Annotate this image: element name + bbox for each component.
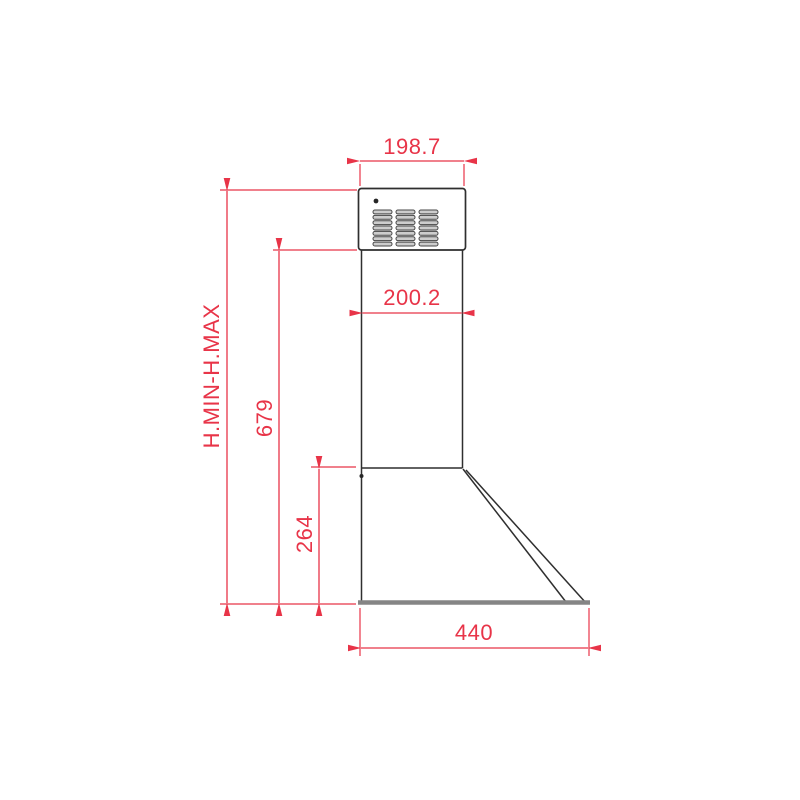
dimension-label-top-duct-width: 198.7 (383, 134, 441, 159)
dimension-top-duct-width: 198.7 (360, 134, 464, 186)
vent-slot (396, 242, 415, 246)
vent-grid (373, 210, 438, 246)
dimension-base-depth: 440 (360, 608, 589, 656)
dimension-height-range: H.MIN-H.MAX (199, 190, 357, 603)
dimension-label-base-depth: 440 (455, 620, 493, 645)
vent-slot (373, 231, 392, 235)
technical-drawing-canvas: 198.7 200.2 H.MIN-H.MAX 679 264 (0, 0, 800, 800)
dimension-chimney-width: 200.2 (363, 285, 462, 313)
vent-slot (373, 226, 392, 230)
vent-slot (419, 210, 438, 214)
vent-slot (373, 215, 392, 219)
vent-slot (373, 221, 392, 225)
vent-slot (373, 242, 392, 246)
canopy-visor-inner-edge (463, 469, 566, 602)
vent-slot (396, 226, 415, 230)
vent-slot (419, 231, 438, 235)
vent-slot (419, 221, 438, 225)
vent-slot (373, 237, 392, 241)
mounting-hole-dot (374, 199, 379, 204)
canopy-visor-outer-edge (466, 470, 586, 603)
vent-slot (396, 231, 415, 235)
vent-slot (419, 237, 438, 241)
vent-slot (419, 242, 438, 246)
vent-slot (396, 215, 415, 219)
dimension-label-chimney-width: 200.2 (383, 285, 441, 310)
vent-slot (396, 210, 415, 214)
hood-outline (358, 189, 590, 604)
dimension-label-chimney-height: 679 (252, 399, 277, 437)
dimension-label-height-range: H.MIN-H.MAX (199, 304, 224, 449)
vent-slot (396, 237, 415, 241)
vent-slot (373, 210, 392, 214)
dimension-label-canopy-height: 264 (292, 515, 317, 553)
vent-slot (419, 226, 438, 230)
canopy-screw-dot (360, 474, 364, 478)
cooker-hood-dimension-drawing: 198.7 200.2 H.MIN-H.MAX 679 264 (0, 0, 800, 800)
dimension-canopy-height: 264 (292, 467, 356, 603)
page: { "colors": { "accent": "#e83448", "ink"… (0, 0, 800, 800)
vent-slot (419, 215, 438, 219)
vent-slot (396, 221, 415, 225)
